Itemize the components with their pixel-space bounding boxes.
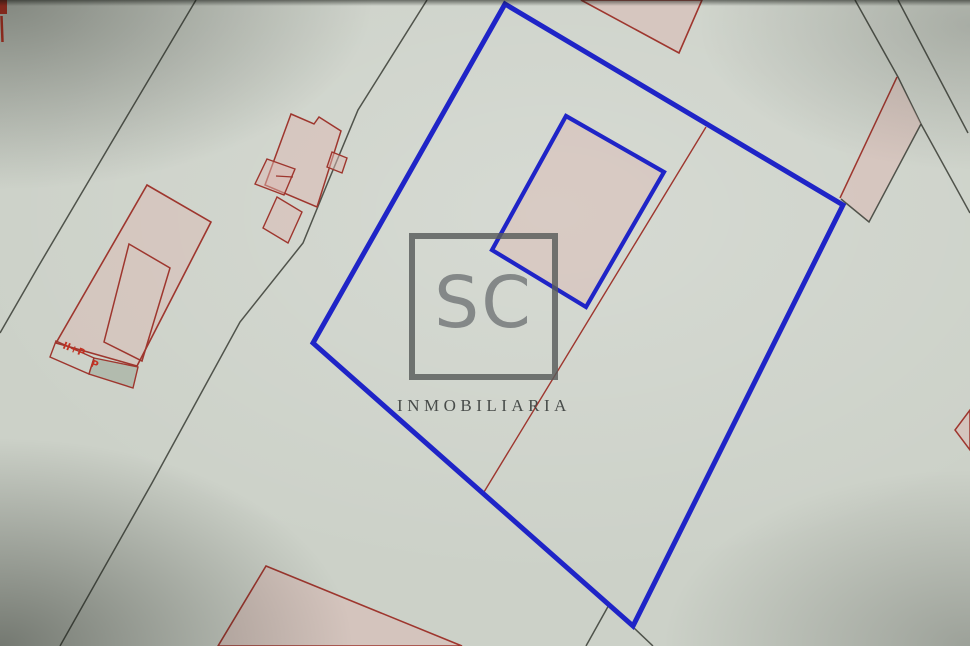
watermark-monogram: SC [434, 267, 533, 338]
edge-mark-red-tick [2, 16, 3, 42]
building-bottom-center [218, 566, 462, 646]
watermark-subtitle: INMOBILIARIA [334, 396, 634, 416]
building-top-center-fragment [581, 0, 702, 53]
building-bottom-right-fragment [955, 410, 970, 450]
building-left-outer [56, 185, 211, 366]
boundary-stub-left [586, 603, 610, 646]
boundary-stub-right [634, 628, 653, 646]
edge-mark-red-rect [0, 0, 7, 14]
building-cluster-lower [263, 197, 302, 243]
cadastral-plot-photo: II+PP SC INMOBILIARIA [0, 0, 970, 646]
watermark-frame: SC [409, 233, 558, 380]
parcel-highlight-blue [313, 4, 843, 626]
